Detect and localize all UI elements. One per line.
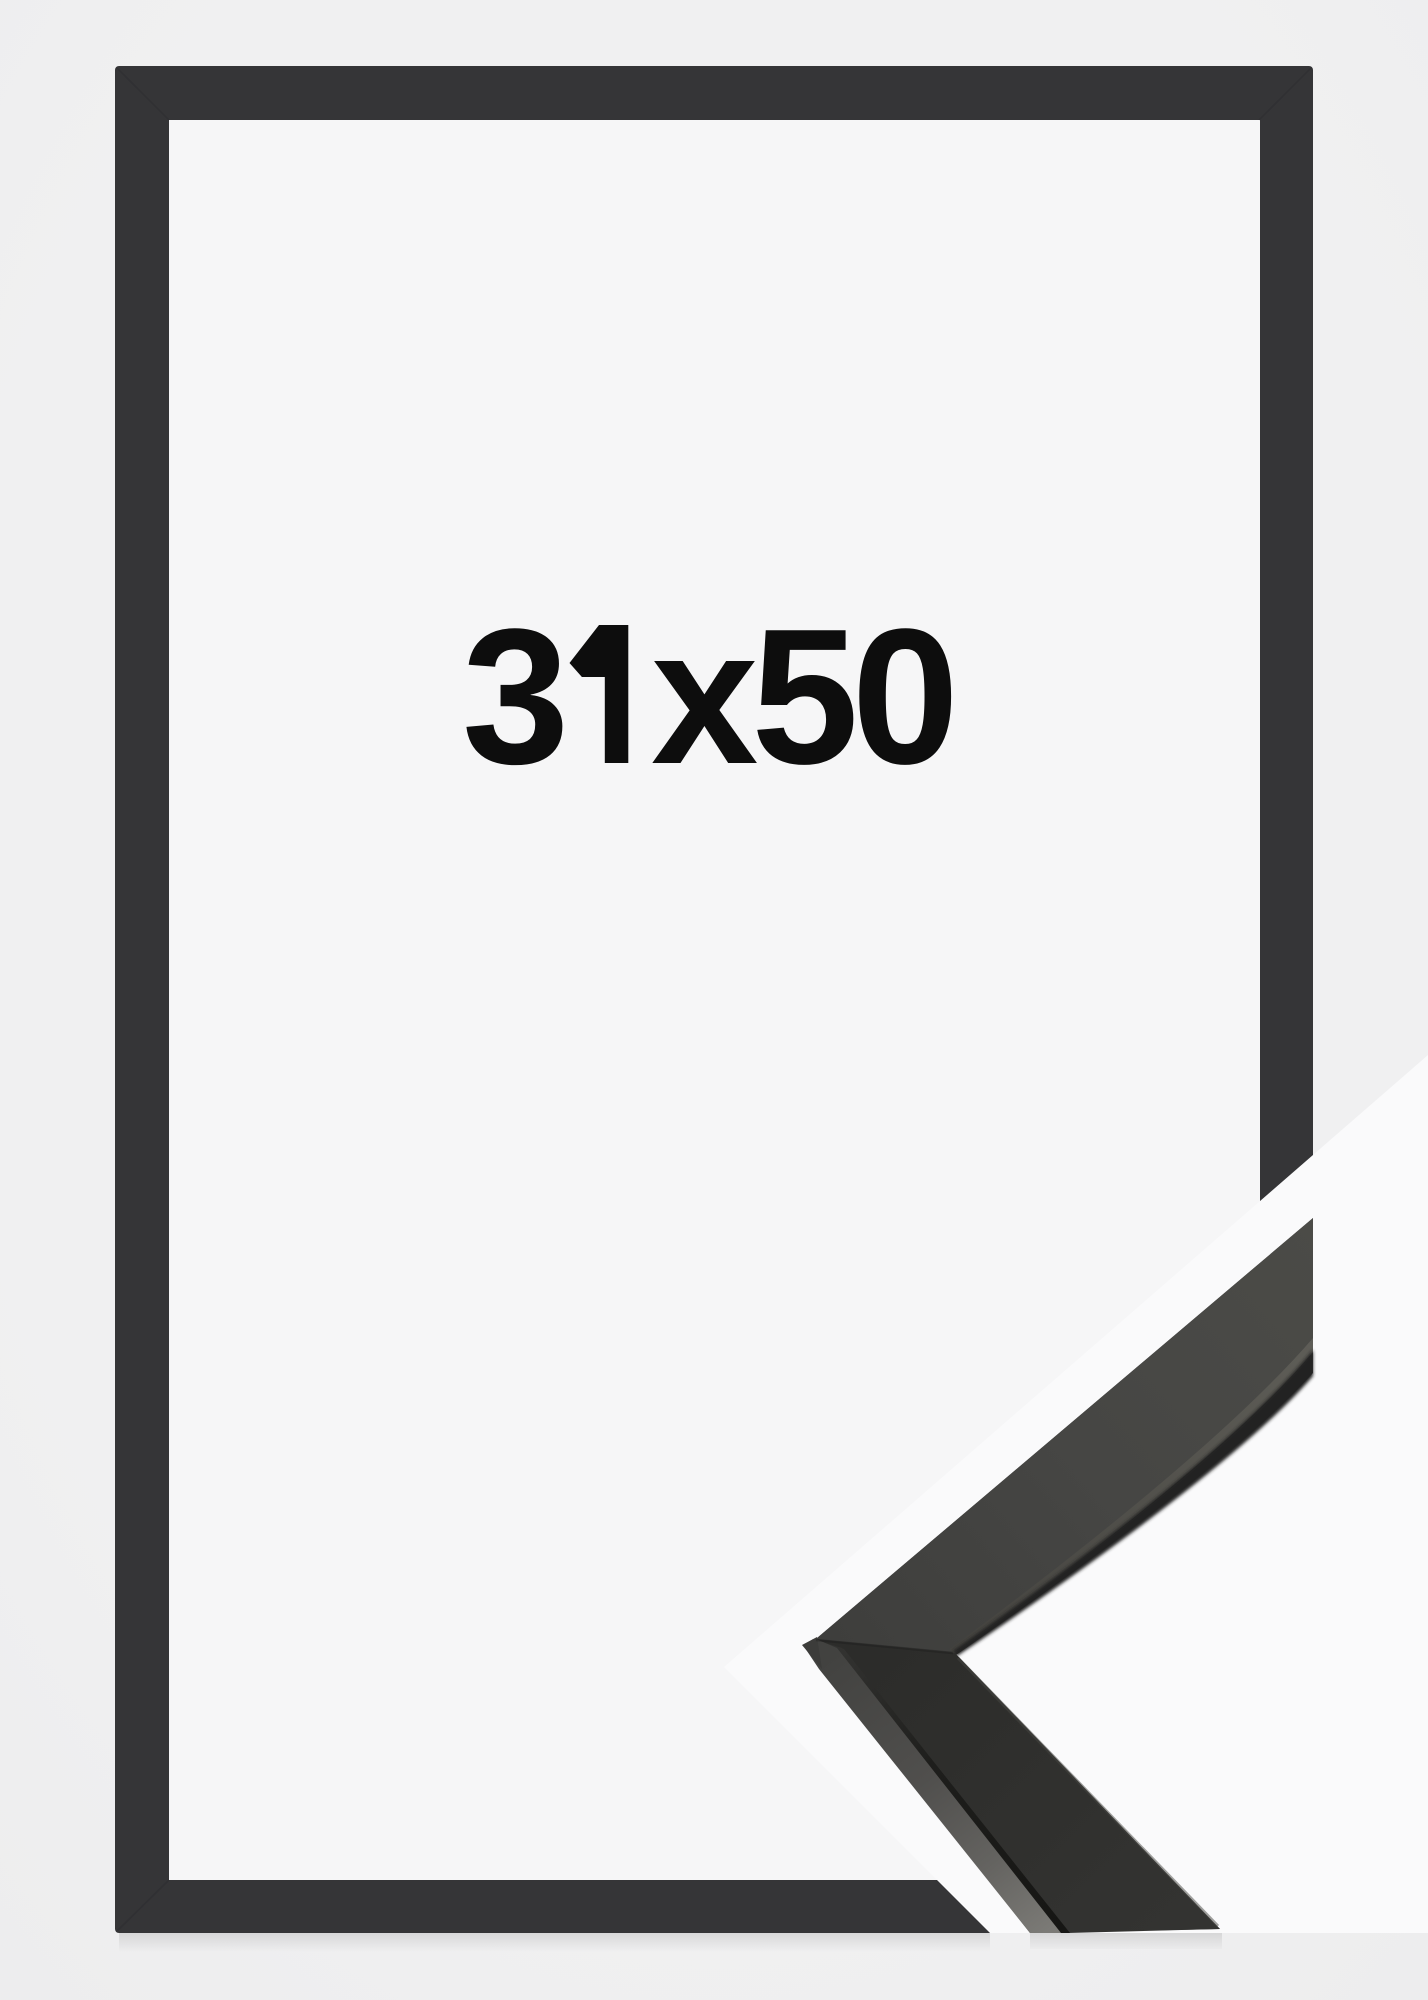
svg-text:x50: x50 (651, 588, 952, 804)
svg-text:3: 3 (462, 588, 569, 804)
